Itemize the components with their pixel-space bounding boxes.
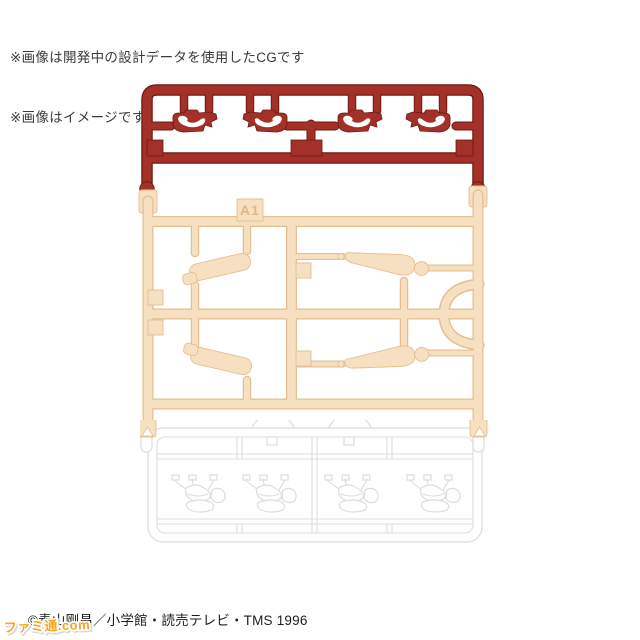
cream-bead [338,361,344,367]
cream-gate-tab [296,351,311,366]
cream-runner-sprue: A1 [135,183,500,443]
red-gate-tab [456,140,473,156]
famitsu-logo-text: ファミ通.com [4,617,91,635]
disclaimer-line-1: ※画像は開発中の設計データを使用したCGです [10,48,305,68]
cream-arm-part [344,342,430,374]
cream-gate-tab [148,290,163,305]
runner-tag-a1-label: A1 [240,202,260,218]
cream-bead [338,253,344,259]
page: ※画像は開発中の設計データを使用したCGです ※画像はイメージです [0,0,640,640]
cream-gate-tab [296,263,311,278]
red-runner-sprue [135,78,500,200]
cream-arm-part [344,247,430,279]
runner-tag-a1: A1 [237,199,263,221]
red-shoe-part [338,110,382,132]
cream-leg-part [181,342,253,376]
white-runner-sprue [140,420,495,555]
red-shoe-part [243,110,287,132]
cream-gate-tab [148,320,163,335]
red-shoe-part [173,110,217,132]
red-gate-tab [147,140,163,156]
red-shoe-part [406,110,450,132]
red-gate-tab [291,140,322,156]
cream-leg-part [180,252,252,286]
famitsu-logo: ファミ通.com ファミ通.com [0,612,96,640]
cream-runner-frame [148,195,479,418]
red-runner-frame [147,90,478,189]
